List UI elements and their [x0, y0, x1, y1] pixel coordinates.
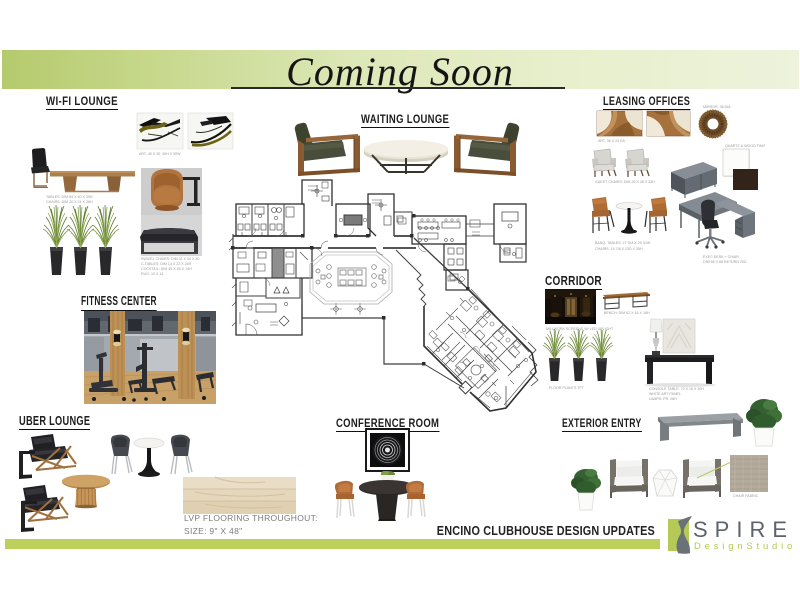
svg-text:TABLES: DIM 84 X 40 X 30H: TABLES: DIM 84 X 40 X 30H — [46, 195, 93, 199]
svg-text:CONSOLE TABLE: 70 X 16 X 30H: CONSOLE TABLE: 70 X 16 X 30H — [649, 387, 704, 391]
svg-text:GUEST CHAIRS: DIM 25 X 26 X 33: GUEST CHAIRS: DIM 25 X 26 X 33H — [595, 180, 655, 184]
svg-text:DesignStudio: DesignStudio — [694, 541, 796, 552]
svg-text:QUARTZ & WOOD FINISH: QUARTZ & WOOD FINISH — [725, 144, 765, 148]
svg-text:BENCH: DIM 62 X 18 X 18H: BENCH: DIM 62 X 18 X 18H — [604, 311, 650, 315]
svg-text:ART, 40 X 30, 40H X 30W: ART, 40 X 30, 40H X 30W — [139, 152, 181, 156]
svg-text:SWIVEL CHAIRS: DIM 31 X 34 X 3: SWIVEL CHAIRS: DIM 31 X 34 X 30 — [141, 257, 199, 261]
svg-text:COCKTAIL: DIM 45 X 45 X 14H: COCKTAIL: DIM 45 X 45 X 14H — [141, 267, 192, 271]
svg-text:ART, 36 X 24 EA: ART, 36 X 24 EA — [598, 139, 626, 143]
svg-text:CHAIRS: DIM 20 X 24 X 36H: CHAIRS: DIM 20 X 24 X 36H — [46, 200, 93, 204]
svg-text:CHAIRS: 19 7/8 X 23D X 35H: CHAIRS: 19 7/8 X 23D X 35H — [595, 247, 643, 251]
svg-text:SPIRE: SPIRE — [693, 517, 794, 542]
svg-text:FLOOR PLANTS 7FT: FLOOR PLANTS 7FT — [549, 386, 585, 390]
svg-text:MIRROR, 36 DIA: MIRROR, 36 DIA — [703, 105, 731, 109]
svg-text:C-TABLES: DIM 14 X 22 X 24H: C-TABLES: DIM 14 X 22 X 24H — [141, 262, 192, 266]
svg-text:RUG: 10 X 14: RUG: 10 X 14 — [141, 272, 163, 276]
svg-text:BANQ. TABLES: 27 DIA X 29 3/4H: BANQ. TABLES: 27 DIA X 29 3/4H — [595, 241, 651, 245]
svg-text:CHAIR FABRIC: CHAIR FABRIC — [733, 494, 759, 498]
svg-text:EXEC DESK + CHAIR: EXEC DESK + CHAIR — [703, 255, 739, 259]
svg-text:DIM 66 X 66 RETURN 20D: DIM 66 X 66 RETURN 20D — [703, 260, 747, 264]
